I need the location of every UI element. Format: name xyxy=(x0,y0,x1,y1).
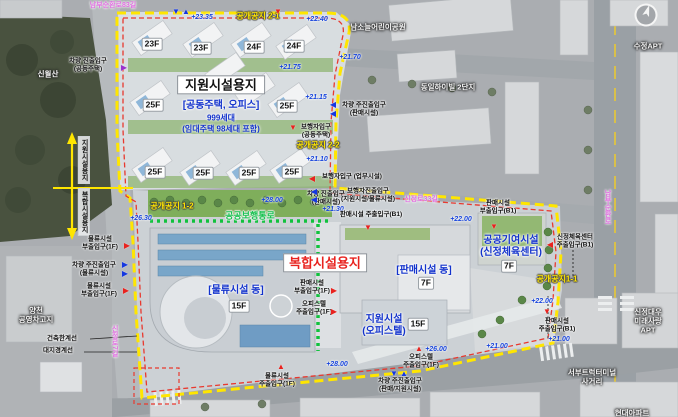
zone-labels: 지원시설용지 [공동주택, 오피스] 999세대 (임대주택 98세대 포함) … xyxy=(0,0,678,417)
logistics-building-label: [물류시설 동] xyxy=(208,285,263,297)
support-site-title: 지원시설용지 xyxy=(177,75,265,94)
officetel-label: 지원시설 (오피스텔) xyxy=(362,314,405,338)
complex-site-title: 복합시설용지 xyxy=(283,253,367,272)
retail-building-label: [판매시설 동] xyxy=(396,265,451,277)
support-site-units: 999세대 xyxy=(207,113,235,122)
support-site-subtitle: [공동주택, 오피스] xyxy=(183,100,260,112)
public-walkway-label: 공공보행통로 xyxy=(225,211,275,222)
public-contribution-label: 공공기여시설 (신정체육센터) xyxy=(480,235,542,259)
site-plan-screenshot: 공개공지 2-1공개공지 2-2공개공지 1-2공개공지1-1 23F23F24… xyxy=(0,0,678,417)
support-site-units-note: (임대주택 98세대 포함) xyxy=(182,124,260,133)
